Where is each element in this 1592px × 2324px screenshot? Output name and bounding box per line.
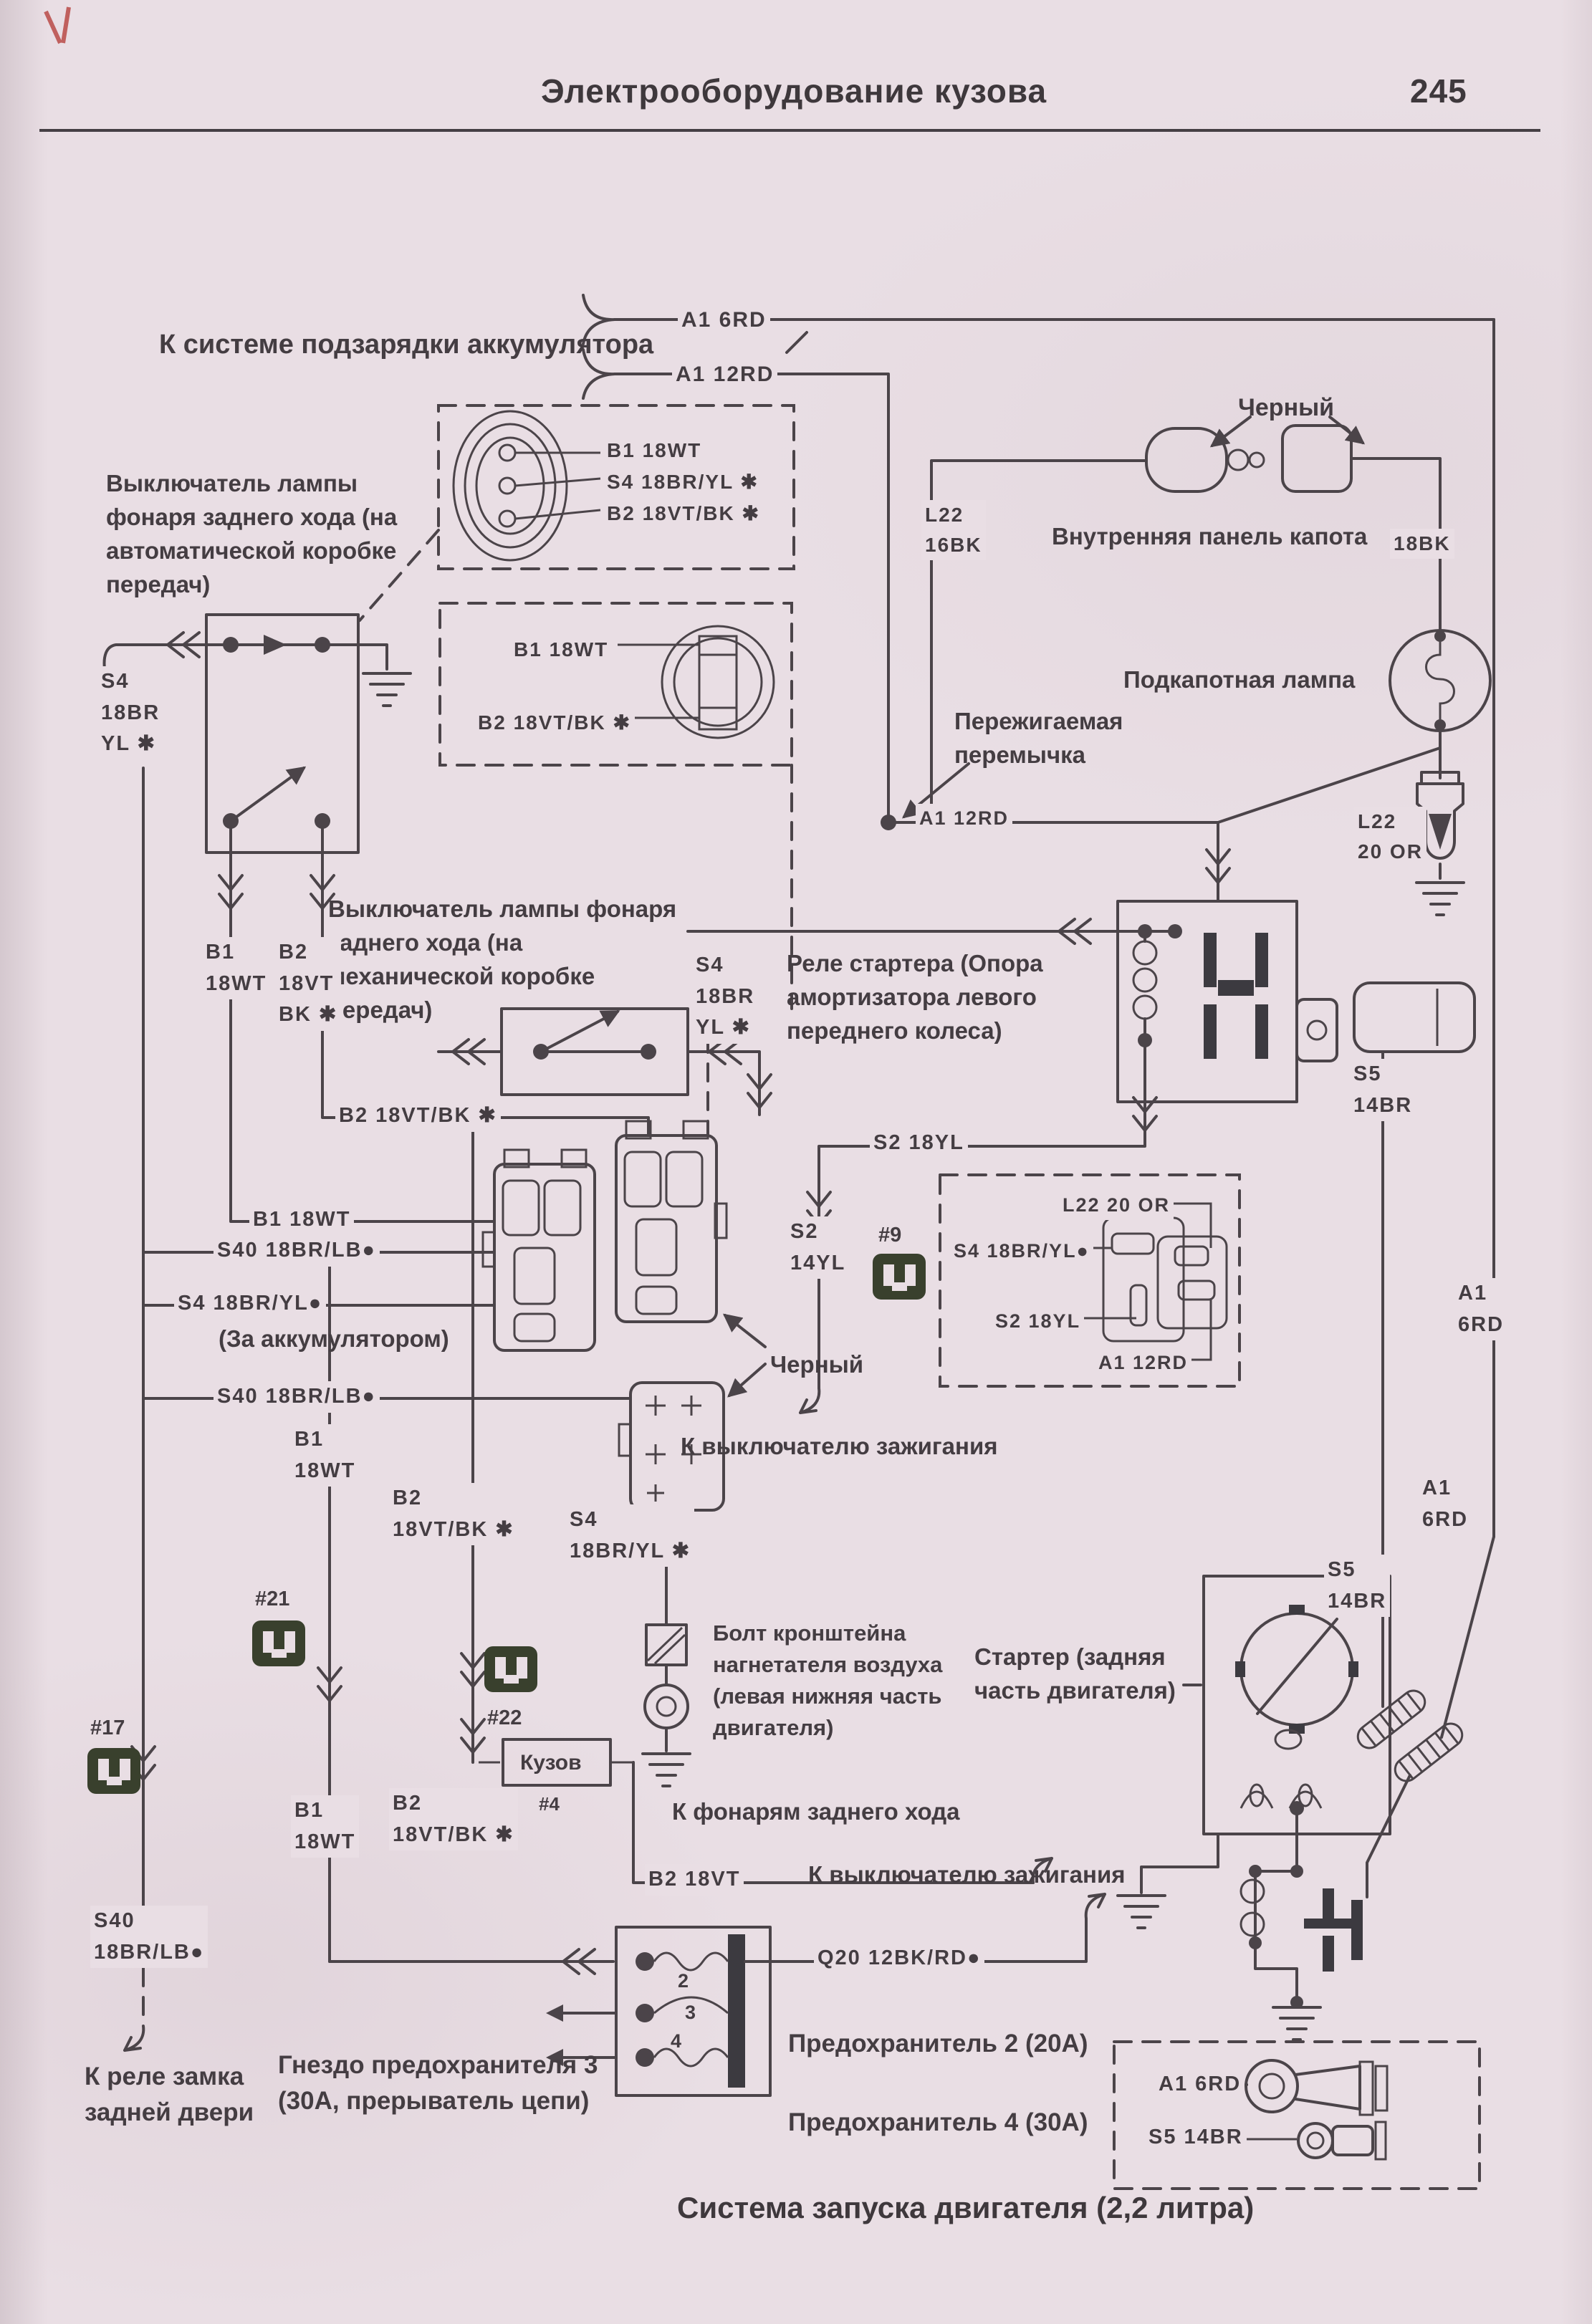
num17: #17 [90,1714,125,1743]
cherny-mid: Черный [770,1348,863,1382]
wire-s2-18yl: S2 18YL [870,1128,968,1159]
fuse3-socket-label: Гнездо предохранителя 3 (30A, прерывател… [278,2047,598,2118]
bolt-label: Болт кронштейна нагнетателя воздуха (лев… [713,1618,971,1744]
wire-s4-left: S4 18BR YL ✱ [97,666,163,760]
ring-terminal-detail [1114,2042,1480,2189]
underhood-lamp: Подкапотная лампа [1123,663,1355,697]
fuse4-label: Предохранитель 4 (30A) [788,2105,1088,2141]
wire-b1-row: B1 18WT [249,1204,354,1236]
fuse2-num: 2 [678,1967,689,1994]
kuzov: Кузов [520,1748,582,1779]
pin-s4-18br-yl: S4 18BR/YL ✱ [603,467,762,497]
za-akkum: (За аккумулятором) [219,1322,449,1356]
starter-label: Стартер (задняя часть двигателя) [974,1641,1211,1708]
wire-18bk: 18BK [1390,529,1454,559]
starter-relay-label: Реле стартера (Опора амортизатора левого… [787,947,1059,1048]
wire-b2-18vt-bk-v: B2 18VT BK ✱ [275,937,341,1031]
inner-hood-panel: Внутренняя панель капота [1052,520,1367,554]
wire-l22-20or: L22 20 OR [1354,807,1426,867]
wire-a1-starter: A1 6RD [1419,1473,1472,1535]
wire-l22-16bk: L22 16BK [921,500,986,560]
fusible-link-label: Пережигаемая перемычка [954,705,1123,772]
wire-b1-18wt-v: B1 18WT [202,937,270,999]
to-ignition-2: К выключателю зажигания [808,1858,1126,1892]
boxd-l22: L22 20 OR [1059,1191,1174,1220]
wire-s4-lower: S4 18BR/YL ✱ [566,1504,694,1567]
num4: #4 [539,1791,560,1818]
cherny-mid-arrows [725,1315,765,1396]
wire-s4-row: S4 18BR/YL● [174,1288,326,1320]
pin-b2-18vt-bk: B2 18VT/BK ✱ [603,499,764,529]
to-ignition-1: К выключателю зажигания [681,1430,998,1464]
left-bus-s4-s40 [87,768,155,2050]
num9: #9 [878,1221,901,1250]
boxd-a1: A1 12RD [1095,1348,1191,1378]
wire-b1-lower2: B1 18WT [291,1795,359,1858]
wire-a1-12rd-mid: A1 12RD [916,804,1012,833]
wire-s40-bottom: S40 18BR/LB● [90,1906,208,1968]
wire-b2-lower: B2 18VT/BK ✱ [389,1483,518,1545]
to-rear-lamps: К фонарям заднего хода [672,1795,960,1829]
red-pen-mark [46,7,69,43]
cherny-top: Черный [1238,390,1334,425]
connector-icon-9 [873,1254,926,1300]
fuse3-num: 3 [685,1999,696,2026]
lamp-b1-18wt: B1 18WT [510,635,612,665]
wire-s40-row1: S40 18BR/LB● [214,1235,380,1267]
num21: #21 [255,1585,289,1614]
wire-s40-row2: S40 18BR/LB● [214,1381,380,1413]
wire-s4-relay: S4 18BR YL ✱ [692,950,758,1044]
boxf-s5-14br: S5 14BR [1145,2122,1247,2153]
wire-q20: Q20 12BK/RD● [814,1943,984,1974]
wire-b1-lower: B1 18WT [291,1424,359,1487]
wire-b2-row: B2 18VT/BK ✱ [335,1100,501,1132]
wire-s5-right: S5 14BR [1350,1059,1416,1121]
to-charging-system: К системе подзарядки аккумулятора [159,326,653,365]
wire-a1-6rd-top: A1 6RD [678,304,770,336]
to-rear-door-relay: К реле замка задней двери [85,2059,254,2130]
switch-manual-label: Выключатель лампы фонаря заднего хода (н… [328,893,694,1027]
boxf-a1-6rd: A1 6RD [1155,2069,1245,2100]
wire-a1-right: A1 6RD [1454,1278,1507,1340]
lamp-b2-18vt-bk: B2 18VT/BK ✱ [474,708,635,738]
fuse2-label: Предохранитель 2 (20A) [788,2026,1088,2062]
fuse4-num: 4 [671,2027,681,2055]
wire-b2-lower2: B2 18VT/BK ✱ [389,1788,518,1850]
wire-s2-14yl: S2 14YL [787,1216,849,1279]
wire-b2-18vt-row: B2 18VT [645,1864,744,1896]
diagram-caption: Система запуска двигателя (2,2 литра) [677,2191,1254,2225]
wire-a1-12rd-top: A1 12RD [672,358,777,390]
boxd-s2: S2 18YL [992,1307,1084,1336]
num22: #22 [487,1704,522,1733]
pin-b1-18wt: B1 18WT [603,436,705,466]
boxd-s4: S4 18BR/YL● [950,1237,1093,1266]
switch-auto-label: Выключатель лампы фонаря заднего хода (н… [106,467,421,601]
wire-s5-starter: S5 14BR [1324,1555,1390,1617]
